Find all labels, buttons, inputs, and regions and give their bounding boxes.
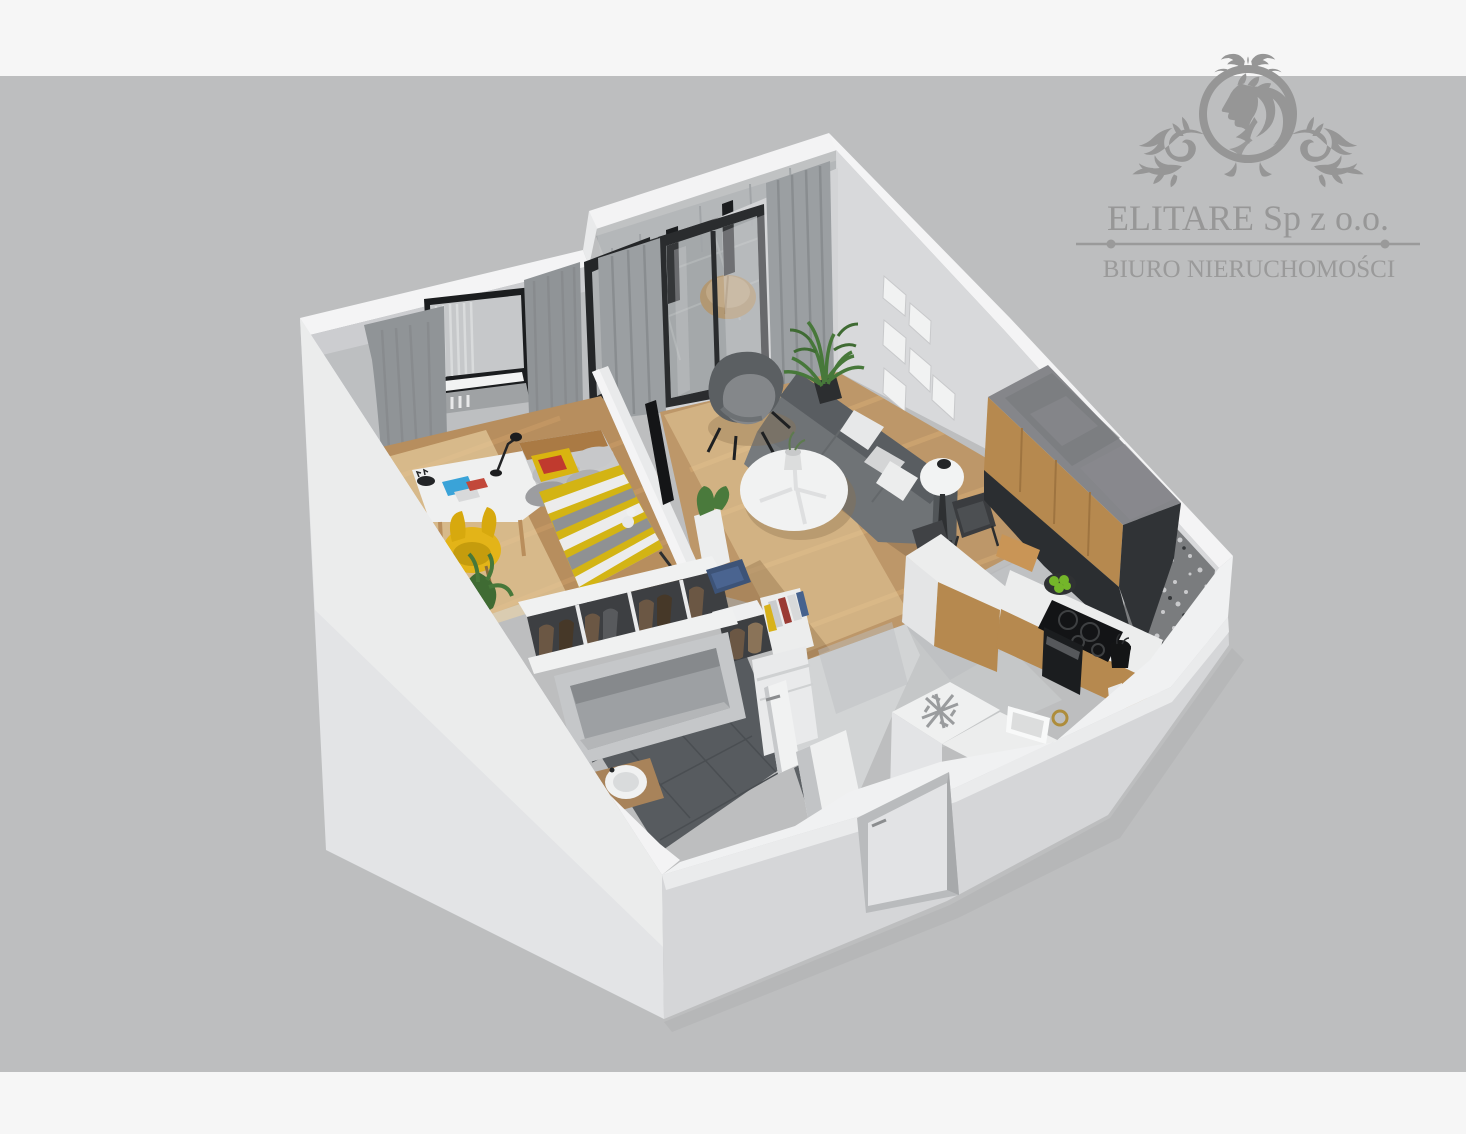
- svg-text:BIURO NIERUCHOMOŚCI: BIURO NIERUCHOMOŚCI: [1103, 255, 1395, 283]
- svg-text:ELITARE Sp z o.o.: ELITARE Sp z o.o.: [1107, 198, 1389, 238]
